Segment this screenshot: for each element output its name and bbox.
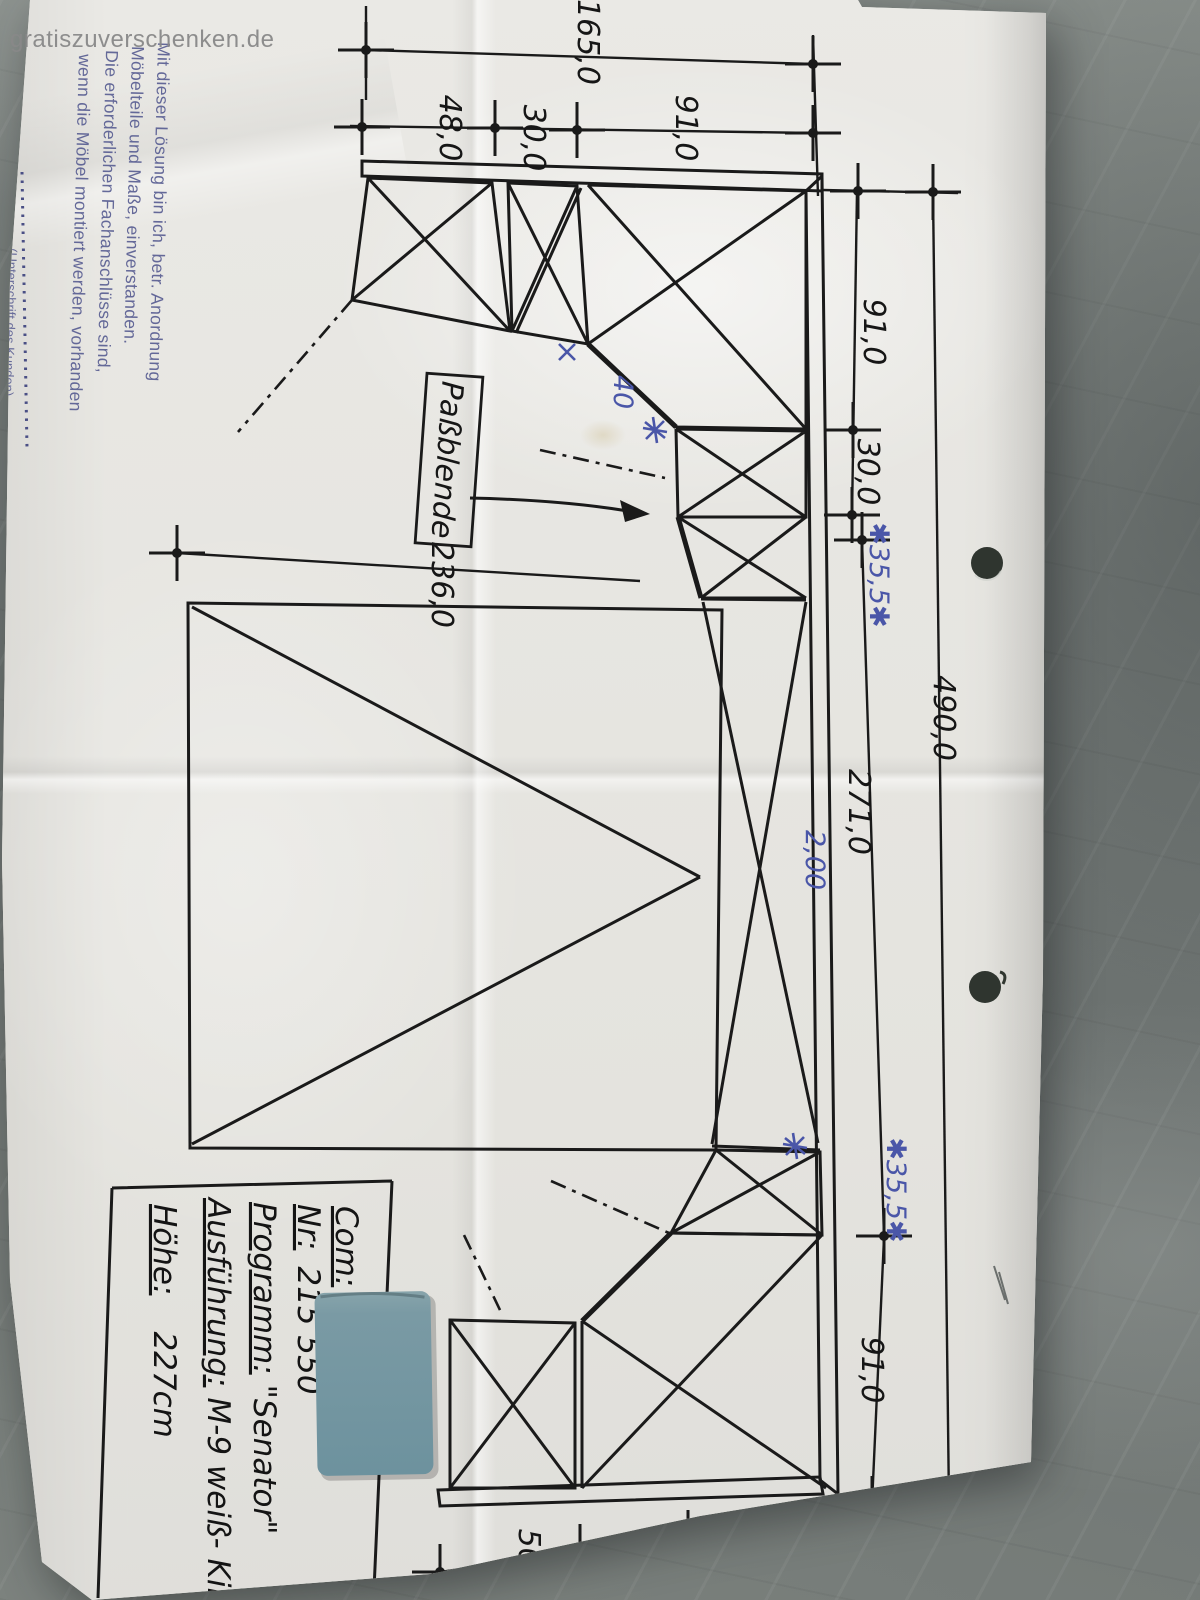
info-row-ausfuehrung: Ausführung:M-9 weiß- Kirsch-Nachb. [200,1196,236,1600]
blue-label-40: 40 [607,375,638,409]
cabinet-bottom-corner [671,1150,822,1235]
info-row-hoehe: Höhe:227cm [146,1204,182,1438]
signature-dotted-line [22,172,27,448]
printed-customer-note: Mit dieser Lösung bin ich, betr. Anordnu… [1,42,174,448]
ausfuehrung-label: Ausführung: [200,1196,236,1387]
punch-hole-bottom [969,971,1001,1003]
cabinet-outlines [352,178,826,1488]
photo-scene: Mit dieser Lösung bin ich, betr. Anordnu… [0,0,1200,1600]
sticky-note [314,1291,438,1481]
printed-note-line4: wenn die Möbel montiert werden, vorhande… [66,53,95,412]
dim-label-48: 48,0 [432,95,467,162]
com-label: Com: [328,1206,364,1287]
blue-star-wall [783,1133,807,1159]
dim-label-145: 145,0 [629,1549,664,1600]
dim-line-490 [933,193,949,1504]
dim-label-30-top: 30,0 [516,105,551,172]
dim-label-91-top: 91,0 [668,95,703,162]
dim-label-91-bottom: 91,0 [710,1533,745,1600]
blue-label-200: 2,00 [799,830,830,890]
dim-label-91-right: 91,0 [856,299,891,366]
blue-star-corner [643,417,667,443]
dim-line-271 [862,540,884,1236]
dim-label-165: 165,0 [570,0,605,85]
bottom-wall [438,1477,823,1506]
nr-label: Nr: [290,1204,326,1250]
dash-line-top-left [238,300,352,432]
dash-line-bottom-left [464,1235,500,1310]
dim-label-91-bottom-right: 91,0 [854,1337,889,1404]
furniture-plan-drawing: Mit dieser Lösung bin ich, betr. Anordnu… [0,0,1200,1600]
dash-line-corner [540,450,665,478]
dim-line-236 [177,553,640,581]
passblende-arrowhead [620,500,650,522]
cabinet-top-left [352,178,510,331]
dim-label-236: 236,0 [424,542,459,628]
blue-label-355-top: ✱35,5✱ [863,522,894,627]
programm-value: "Senator" [246,1385,282,1535]
info-row-com: Com: [328,1206,364,1287]
dim-label-30-right: 30,0 [850,439,885,506]
printed-note-line3: Die erforderlichen Fachanschlüsse sind, [94,50,122,373]
dim-label-271: 271,0 [841,769,876,855]
cabinet-top-mid [508,183,588,344]
printed-note-line2: Möbelteile und Maße, einverstanden. [120,46,148,345]
cabinet-corner [676,429,806,517]
ausfuehrung-value: M-9 weiß- Kirsch-Nachb. [200,1397,236,1600]
printed-note-line1: Mit dieser Lösung bin ich, betr. Anordnu… [145,42,174,382]
bottom-front-angled [582,1233,671,1321]
cabinet-bottom-left [450,1320,575,1488]
dim-label-490: 490,0 [926,675,961,761]
passblende-label: Paßblende [424,380,470,540]
edge-marks [994,1266,1008,1304]
passblende-arrow-line [470,498,628,511]
watermark: gratiszuverschenken.de [10,26,274,54]
info-row-programm: Programm:"Senator" [246,1202,282,1534]
sticky-note-body [314,1291,433,1476]
hole-punches [969,547,1005,1003]
hoehe-value: 227cm [146,1331,182,1437]
dim-line-bottom [440,1506,870,1572]
punch-hole-curl [1000,972,1005,984]
bed-outline [188,603,722,1150]
blue-x-mark [559,344,575,360]
blue-label-355-bottom: ✱35,5✱ [880,1137,911,1242]
dash-line-bottom-right [551,1181,669,1233]
dimension-labels: 165,0 48,0 30,0 91,0 91,0 30,0 271,0 490… [424,0,961,1600]
dim-label-50: 50,0 [511,1529,546,1596]
signature-caption: (Unterschrift des Kunden) [1,248,20,396]
hoehe-label: Höhe: [146,1204,182,1295]
programm-label: Programm: [246,1202,282,1375]
cabinet-bottom-right [582,1233,826,1488]
